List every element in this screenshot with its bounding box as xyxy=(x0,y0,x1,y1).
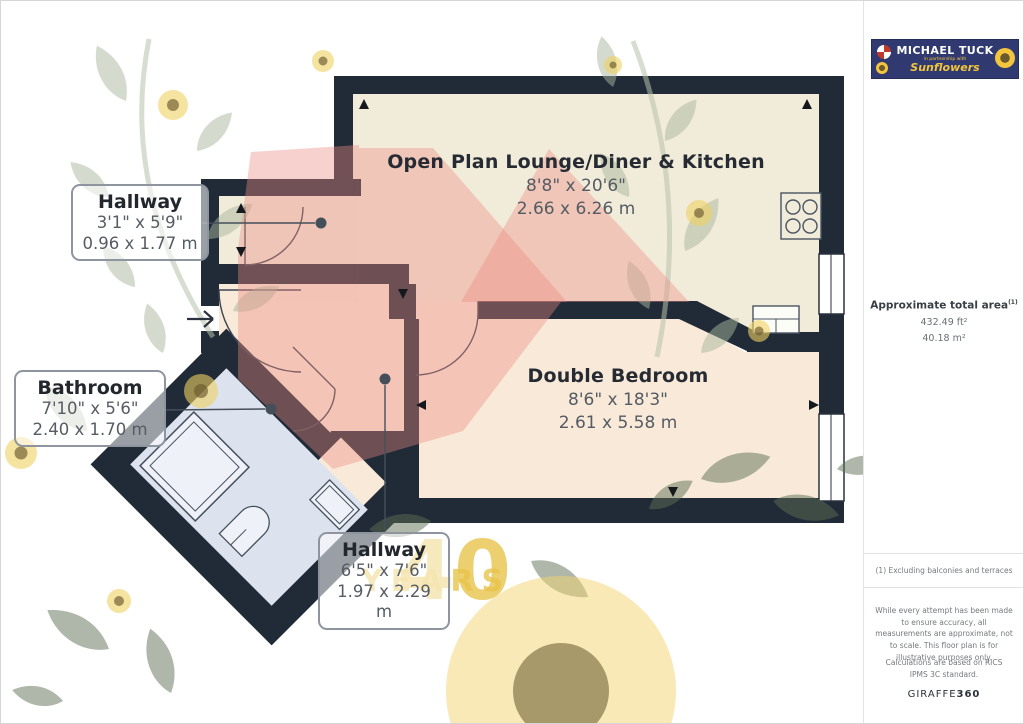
giraffe360-brand: GIRAFFE360 xyxy=(864,689,1024,700)
hallway-bottom-dim-imperial: 6'5" x 7'6" xyxy=(328,561,440,582)
hallway-bottom-name: Hallway xyxy=(328,539,440,561)
bathroom-dim-imperial: 7'10" x 5'6" xyxy=(24,399,156,420)
bathroom-name: Bathroom xyxy=(24,377,156,399)
footnote-marker: (1) xyxy=(1008,299,1018,306)
sunflower-icon-small xyxy=(876,62,888,74)
hallway-bottom-label-box: Hallway 6'5" x 7'6" 1.97 x 2.29 m xyxy=(318,532,450,630)
agency-name: MICHAEL TUCK xyxy=(896,45,993,56)
agency-logo: MICHAEL TUCK in partnership with Sunflow… xyxy=(871,39,1019,79)
bathroom-label-box: Bathroom 7'10" x 5'6" 2.40 x 1.70 m xyxy=(14,370,166,447)
hallway-bottom-dim-metric: 1.97 x 2.29 m xyxy=(328,582,440,623)
window-bedroom xyxy=(819,414,844,501)
hallway-top-label-box: Hallway 3'1" x 5'9" 0.96 x 1.77 m xyxy=(71,184,209,261)
hallway-top-dim-imperial: 3'1" x 5'9" xyxy=(81,213,199,234)
disclaimer-text: While every attempt has been made to ens… xyxy=(864,605,1024,663)
hallway-top-dim-metric: 0.96 x 1.77 m xyxy=(81,234,199,255)
floorplan-page: 40 YEARS xyxy=(0,0,1024,724)
area-footnote: (1) Excluding balconies and terraces xyxy=(864,553,1024,588)
provider-suffix: 360 xyxy=(957,689,981,700)
hob-icon xyxy=(781,193,821,239)
info-sidebar: MICHAEL TUCK in partnership with Sunflow… xyxy=(863,1,1024,723)
sunflower-icon xyxy=(995,48,1015,68)
pinwheel-icon xyxy=(877,45,891,59)
total-area-label: Approximate total area(1) xyxy=(864,299,1024,312)
bathroom-dim-metric: 2.40 x 1.70 m xyxy=(24,420,156,441)
window-lounge xyxy=(819,254,844,314)
agency-subbrand: Sunflowers xyxy=(910,62,979,73)
hallway-top-name: Hallway xyxy=(81,191,199,213)
calculation-standard-text: Calculations are based on RICS IPMS 3C s… xyxy=(864,657,1024,680)
total-area-block: Approximate total area(1) 432.49 ft² 40.… xyxy=(864,299,1024,344)
total-area-metric: 40.18 m² xyxy=(864,333,1024,344)
total-area-imperial: 432.49 ft² xyxy=(864,317,1024,328)
provider-name: GIRAFFE xyxy=(908,689,957,700)
